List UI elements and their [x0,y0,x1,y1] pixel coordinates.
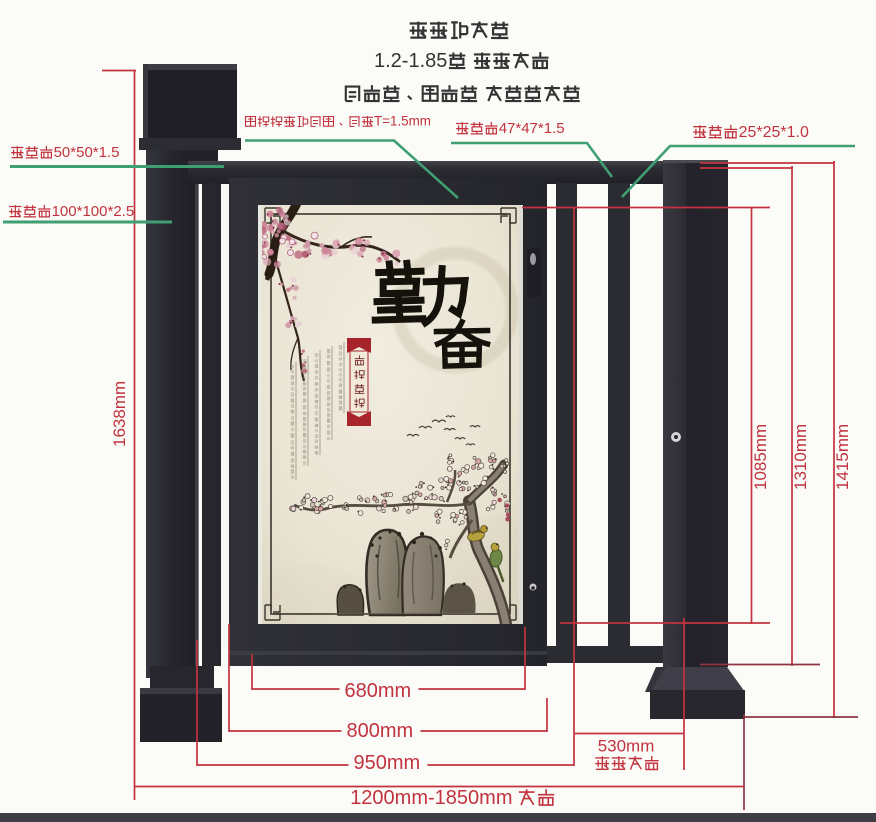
svg-text:1085mm: 1085mm [751,424,770,490]
svg-text:1200mm-1850mm: 1200mm-1850mm [350,787,512,809]
svg-text:25*25*1.0: 25*25*1.0 [739,124,809,141]
svg-text:100*100*2.5: 100*100*2.5 [52,203,135,220]
svg-text:50*50*1.5: 50*50*1.5 [54,144,120,161]
svg-text:T=1.5mm: T=1.5mm [374,114,431,129]
svg-text:1415mm: 1415mm [833,424,852,490]
svg-text:1638mm: 1638mm [110,381,129,447]
svg-text:1310mm: 1310mm [791,424,810,490]
svg-text:680mm: 680mm [345,680,412,702]
svg-text:1.2-1.85: 1.2-1.85 [374,50,447,72]
svg-text:530mm: 530mm [598,737,655,756]
svg-text:950mm: 950mm [354,752,421,774]
svg-text:47*47*1.5: 47*47*1.5 [499,120,565,137]
svg-text:800mm: 800mm [347,720,414,742]
